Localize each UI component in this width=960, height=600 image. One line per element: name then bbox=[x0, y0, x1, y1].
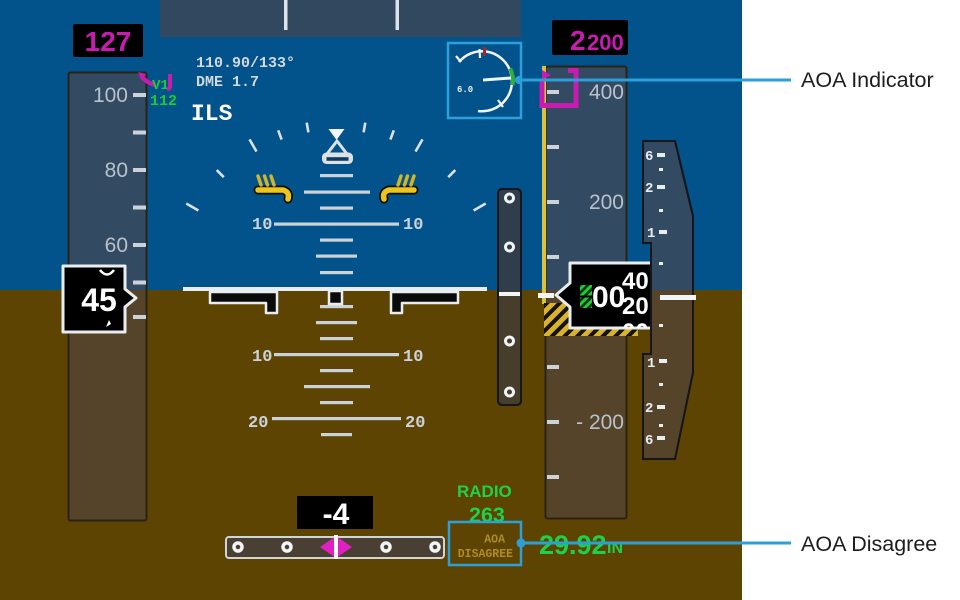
svg-text:RADIO: RADIO bbox=[457, 482, 512, 501]
svg-text:6: 6 bbox=[645, 149, 653, 165]
svg-text:AOA Indicator: AOA Indicator bbox=[801, 68, 934, 92]
svg-text:200: 200 bbox=[587, 30, 624, 55]
svg-text:DISAGREE: DISAGREE bbox=[458, 548, 513, 561]
svg-text:6.0: 6.0 bbox=[457, 85, 473, 95]
svg-text:127: 127 bbox=[85, 26, 132, 57]
svg-text:- 200: - 200 bbox=[576, 411, 624, 434]
svg-text:10: 10 bbox=[403, 216, 423, 235]
svg-text:20: 20 bbox=[405, 414, 425, 433]
svg-text:20: 20 bbox=[622, 293, 649, 320]
svg-text:2: 2 bbox=[645, 181, 653, 197]
svg-text:110.90/133°: 110.90/133° bbox=[196, 55, 295, 72]
svg-text:200: 200 bbox=[589, 191, 624, 214]
svg-text:40: 40 bbox=[622, 268, 649, 295]
svg-text:10: 10 bbox=[252, 348, 272, 367]
svg-text:400: 400 bbox=[589, 81, 624, 104]
svg-text:10: 10 bbox=[403, 348, 423, 367]
svg-text:10: 10 bbox=[252, 216, 272, 235]
svg-text:1: 1 bbox=[647, 226, 655, 242]
svg-text:100: 100 bbox=[93, 84, 128, 107]
svg-text:V1: V1 bbox=[152, 78, 169, 94]
svg-text:2: 2 bbox=[645, 401, 653, 417]
svg-text:29.92: 29.92 bbox=[539, 530, 607, 560]
svg-text:-4: -4 bbox=[323, 498, 350, 531]
svg-text:AOA: AOA bbox=[484, 534, 505, 547]
svg-text:112: 112 bbox=[150, 93, 177, 110]
svg-text:20: 20 bbox=[248, 414, 268, 433]
svg-text:45: 45 bbox=[81, 282, 117, 318]
svg-text:DME 1.7: DME 1.7 bbox=[196, 74, 259, 91]
svg-text:263: 263 bbox=[469, 503, 505, 527]
svg-text:6: 6 bbox=[645, 433, 653, 449]
svg-text:80: 80 bbox=[105, 159, 128, 182]
svg-text:ILS: ILS bbox=[191, 101, 233, 127]
svg-text:2: 2 bbox=[570, 25, 586, 56]
svg-text:00: 00 bbox=[592, 281, 625, 314]
svg-text:AOA Disagree: AOA Disagree bbox=[801, 532, 937, 556]
svg-text:1: 1 bbox=[647, 356, 655, 372]
svg-text:60: 60 bbox=[105, 234, 128, 257]
